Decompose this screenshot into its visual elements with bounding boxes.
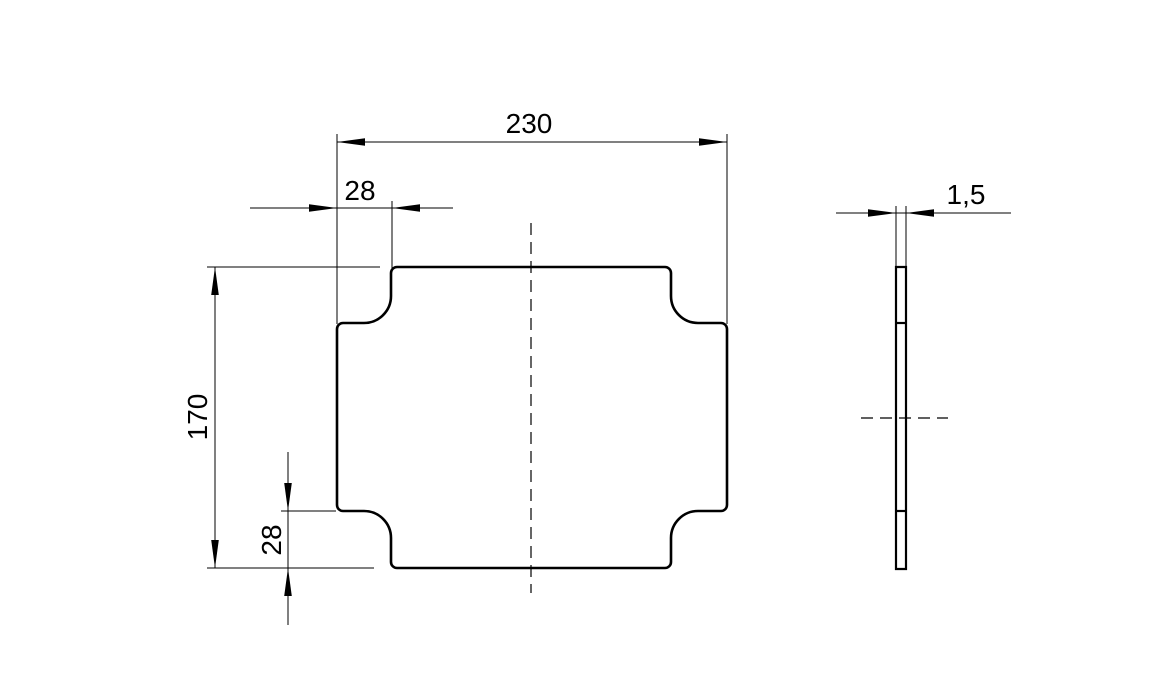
arrowhead-left-icon <box>309 204 337 212</box>
side-view <box>861 267 948 569</box>
dim-label-notch-width: 28 <box>344 175 375 206</box>
arrowhead-left-icon <box>337 138 365 146</box>
dim-thickness: 1,5 <box>836 179 1011 266</box>
dim-overall-width: 230 <box>337 108 727 324</box>
arrowhead-lower-icon <box>284 568 292 596</box>
dim-overall-height: 170 <box>182 267 380 568</box>
arrowhead-top-icon <box>211 267 219 295</box>
front-view <box>337 223 727 593</box>
arrowhead-right-icon <box>699 138 727 146</box>
plate-outline <box>337 267 727 568</box>
dim-label-notch-height: 28 <box>256 524 287 555</box>
dim-notch-height: 28 <box>256 452 336 625</box>
arrowhead-upper-icon <box>284 483 292 511</box>
arrowhead-left-icon <box>868 209 896 217</box>
dim-label-thickness: 1,5 <box>947 179 986 210</box>
arrowhead-bottom-icon <box>211 540 219 568</box>
technical-drawing-canvas: 230 28 170 28 <box>0 0 1176 691</box>
arrowhead-right-icon <box>906 209 934 217</box>
arrowhead-right-icon <box>392 204 420 212</box>
dim-label-overall-height: 170 <box>182 394 213 441</box>
drawing-page: 230 28 170 28 <box>0 0 1176 691</box>
dim-label-overall-width: 230 <box>506 108 553 139</box>
dim-notch-width: 28 <box>250 175 453 268</box>
